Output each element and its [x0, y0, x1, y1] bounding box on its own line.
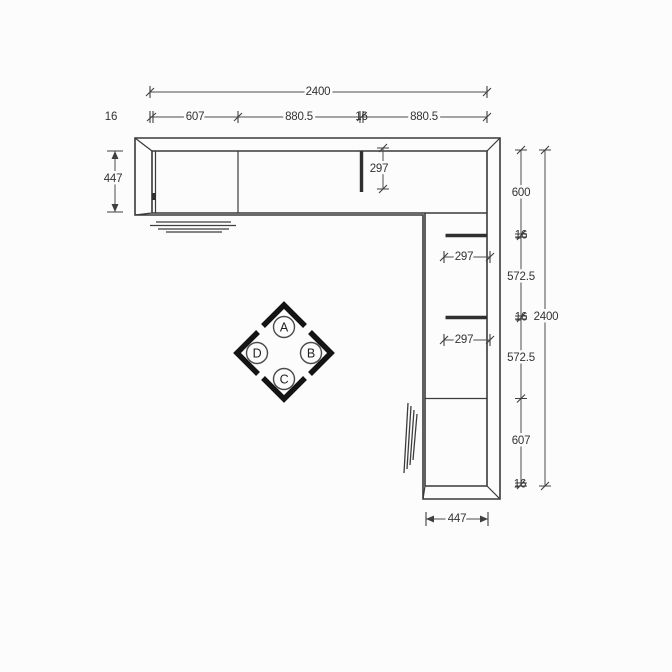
dimension-shelf-upper: 297: [440, 251, 494, 263]
dim-label-right-600: 600: [512, 187, 531, 199]
drawing-canvas: 2400 16 607 880.5 16 880.5 447 297 600: [0, 0, 672, 672]
dim-label-top-607: 607: [186, 111, 205, 123]
dim-label-right-16-b: 16: [515, 312, 527, 324]
view-marker-c: C: [274, 369, 295, 390]
hatch-marks-top-run: [150, 222, 236, 232]
cabinet-outline: [135, 138, 500, 499]
dimension-top-total: 2400: [146, 86, 491, 98]
dim-label-bottom-447: 447: [448, 513, 467, 525]
view-marker-a-label: A: [280, 321, 289, 335]
dim-label-right-607: 607: [512, 435, 531, 447]
cabinet-plan-drawing: 2400 16 607 880.5 16 880.5 447 297 600: [0, 0, 672, 672]
dim-label-top-16-mid: 16: [355, 111, 367, 123]
dim-label-right-572-b: 572.5: [507, 352, 535, 364]
view-marker-b: B: [301, 343, 322, 364]
dimension-right-chain: 600 16 572.5 16 572.5 607 16: [507, 146, 535, 491]
dim-label-right-16-a: 16: [515, 230, 527, 242]
dimension-right-total: 2400: [534, 146, 559, 490]
dim-label-right-total: 2400: [534, 311, 559, 323]
dim-label-left-447: 447: [104, 173, 123, 185]
dim-label-right-572-a: 572.5: [507, 271, 535, 283]
dim-label-top-total: 2400: [306, 86, 331, 98]
view-marker-a: A: [274, 317, 295, 338]
miter-joint-top-left: [135, 138, 152, 151]
view-marker-b-label: B: [307, 347, 315, 361]
dimension-bottom-depth: 447: [426, 512, 488, 526]
cabinet-outer-boundary: [135, 138, 500, 499]
dimension-shelf-lower: 297: [440, 334, 494, 346]
view-marker-d-label: D: [253, 347, 262, 361]
dim-label-shelf-297-upper: 297: [455, 251, 474, 263]
dim-label-top-880-left: 880.5: [285, 111, 313, 123]
dimension-top-chain: 16 607 880.5 16 880.5: [105, 111, 491, 123]
hatch-marks-right-run: [404, 403, 417, 473]
view-markers: A B C D: [237, 305, 331, 399]
miter-joint-top-right: [487, 138, 500, 151]
dim-label-top-16-left: 16: [105, 111, 117, 123]
miter-joint-bottom-right: [487, 486, 500, 499]
view-marker-c-label: C: [280, 373, 289, 387]
dim-label-partition-297: 297: [370, 163, 389, 175]
view-marker-d: D: [247, 343, 268, 364]
dim-label-right-16-c: 16: [514, 479, 526, 491]
dim-label-shelf-297-lower: 297: [455, 334, 474, 346]
dim-label-top-880-right: 880.5: [410, 111, 438, 123]
dimension-left-depth: 447: [104, 151, 123, 212]
